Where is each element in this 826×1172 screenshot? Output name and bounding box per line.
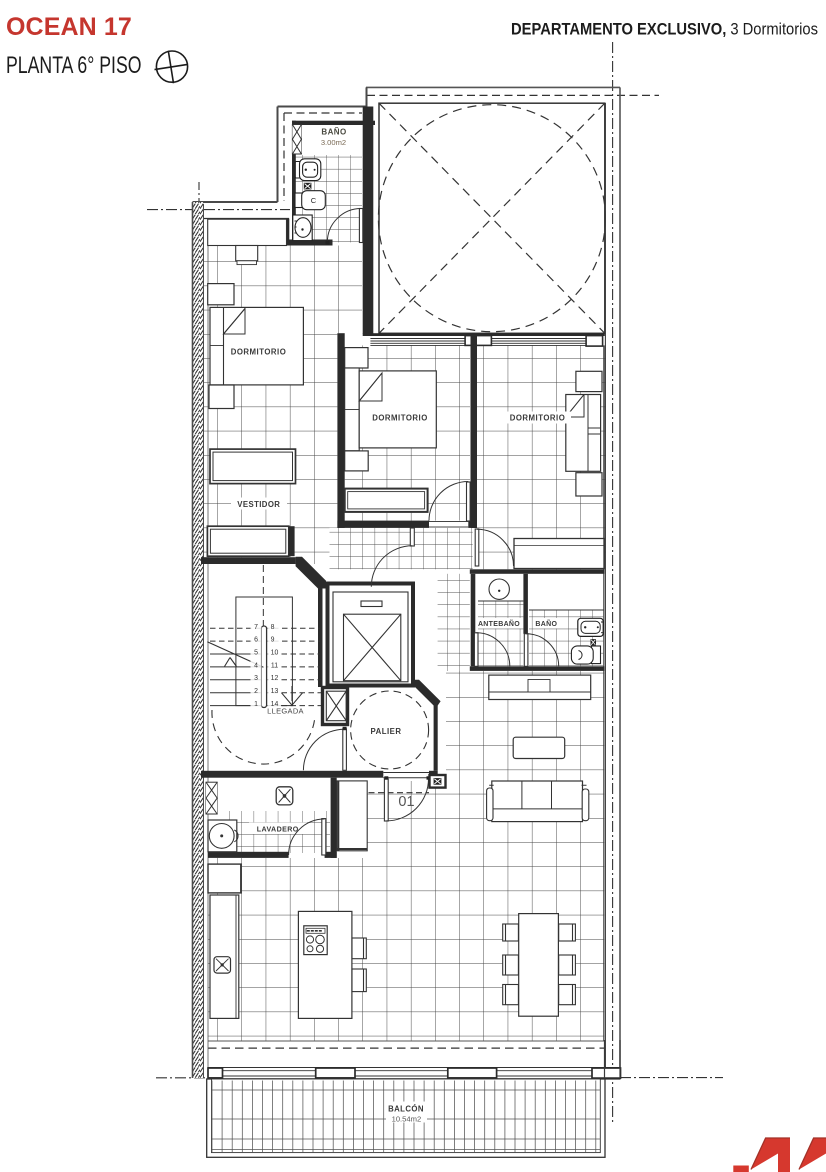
svg-text:3.00m2: 3.00m2	[321, 138, 346, 147]
svg-text:C: C	[311, 196, 317, 205]
svg-text:BAÑO: BAÑO	[535, 619, 557, 628]
svg-text:13: 13	[271, 688, 279, 695]
svg-text:8: 8	[271, 624, 275, 631]
svg-text:DORMITORIO: DORMITORIO	[231, 348, 287, 357]
svg-text:4: 4	[254, 662, 258, 669]
svg-text:DEPARTAMENTO EXCLUSIVO, 3 Dorm: DEPARTAMENTO EXCLUSIVO, 3 Dormitorios	[511, 21, 818, 39]
svg-text:LLEGADA: LLEGADA	[267, 707, 304, 716]
svg-text:12: 12	[271, 675, 279, 682]
svg-text:6: 6	[254, 637, 258, 644]
svg-text:11: 11	[271, 662, 278, 669]
svg-text:5: 5	[254, 649, 258, 656]
svg-text:1: 1	[254, 701, 258, 708]
svg-text:BALCÓN: BALCÓN	[388, 1105, 424, 1114]
svg-text:10: 10	[271, 649, 279, 656]
svg-text:OCEAN 17: OCEAN 17	[6, 13, 132, 41]
svg-text:VESTIDOR: VESTIDOR	[237, 500, 280, 509]
svg-text:DORMITORIO: DORMITORIO	[510, 414, 566, 423]
svg-text:ANTEBAÑO: ANTEBAÑO	[478, 619, 520, 628]
svg-text:01: 01	[398, 794, 414, 810]
svg-text:2: 2	[254, 688, 258, 695]
svg-text:7: 7	[254, 624, 258, 631]
svg-text:3: 3	[254, 675, 258, 682]
svg-text:BAÑO: BAÑO	[321, 128, 346, 137]
svg-text:PALIER: PALIER	[370, 727, 401, 736]
svg-text:10.54m2: 10.54m2	[392, 1114, 422, 1123]
svg-text:LAVADERO: LAVADERO	[257, 825, 299, 833]
svg-text:9: 9	[271, 637, 275, 644]
svg-text:PLANTA 6° PISO: PLANTA 6° PISO	[6, 52, 142, 79]
svg-text:DORMITORIO: DORMITORIO	[372, 414, 428, 423]
